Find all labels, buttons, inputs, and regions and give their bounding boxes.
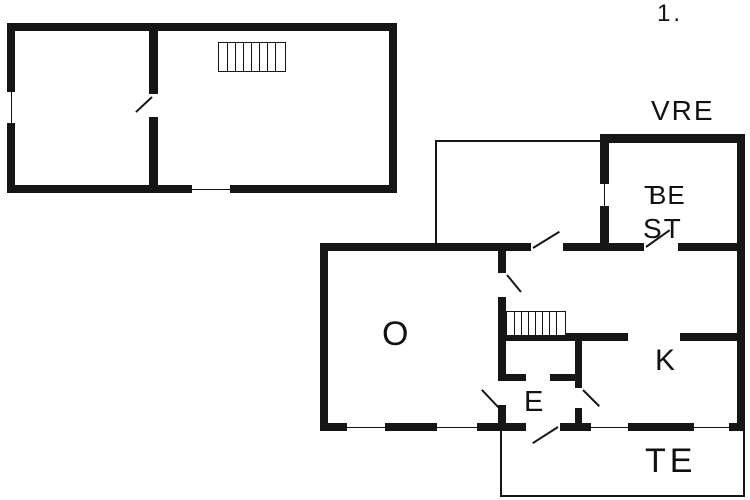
window-pane (11, 92, 12, 123)
thin-wall-terrace-right (743, 431, 745, 497)
thin-wall-annex-left (435, 140, 437, 243)
stair-tread (514, 312, 515, 335)
window-pane (192, 189, 230, 190)
stair-tread (259, 43, 260, 71)
room-label-vre: VRE (651, 97, 715, 125)
stair-tread (542, 312, 543, 335)
stair-tread (535, 312, 536, 335)
window-kitchen-window-2 (694, 422, 729, 432)
wall-main-right (737, 134, 745, 431)
wall-entry-top-d2 (550, 374, 575, 381)
floor-plan-canvas: 1.VREBETSTOKETE (0, 0, 750, 500)
window-be-left-window (599, 184, 610, 206)
thin-wall-terrace-left (500, 431, 502, 497)
wall-hall-wall-a1 (498, 251, 506, 273)
window-pane (591, 427, 628, 428)
floor-number: 1. (657, 2, 683, 26)
stair-tread (227, 43, 228, 71)
room-label-be-overlap: T (644, 182, 660, 208)
stair-tread (243, 43, 244, 71)
thin-wall-terrace-bottom (500, 495, 745, 497)
window-pane (694, 427, 729, 428)
stairs-ground-floor (506, 311, 566, 336)
door-swing-entry-kitchen-door (582, 389, 599, 406)
stair-tread (251, 43, 252, 71)
stair-tread (556, 312, 557, 335)
wall-entry-top-d1 (506, 374, 526, 381)
window-pane (347, 427, 385, 428)
wall-hall-wall-a2 (498, 297, 506, 381)
room-label-te: TE (645, 444, 696, 478)
window-pane (437, 427, 477, 428)
stair-tread (267, 43, 268, 71)
stair-tread (521, 312, 522, 335)
wall-be-top (600, 134, 745, 143)
wall-hall-wall-a3 (498, 405, 506, 431)
wall-entry-right-c1 (575, 341, 582, 388)
window-pane (604, 184, 605, 206)
stair-tread (235, 43, 236, 71)
wall-kitchen-top-b2 (680, 333, 737, 341)
stair-tread (549, 312, 550, 335)
wall-main-top (320, 243, 608, 251)
thin-wall-annex-top (435, 140, 600, 142)
stair-tread (528, 312, 529, 335)
window-upper-bottom-window (192, 184, 230, 194)
door-swing-hall-door (506, 274, 522, 292)
room-label-st: ST (643, 215, 683, 243)
stair-tread (275, 43, 276, 71)
room-label-e: E (524, 388, 543, 417)
window-living-window-2 (437, 422, 477, 432)
window-kitchen-window-1 (591, 422, 628, 432)
window-living-window-1 (347, 422, 385, 432)
window-upper-left-window (6, 92, 16, 123)
door-swing-living-entry-door (481, 389, 499, 408)
stairs-upper-floor (218, 42, 286, 72)
wall-entry-right-c2 (575, 408, 582, 431)
wall-upper-right (389, 23, 397, 193)
wall-main-left (320, 243, 328, 431)
wall-upper-top (7, 23, 397, 31)
room-label-k: K (655, 346, 675, 376)
room-label-o: O (382, 317, 408, 351)
